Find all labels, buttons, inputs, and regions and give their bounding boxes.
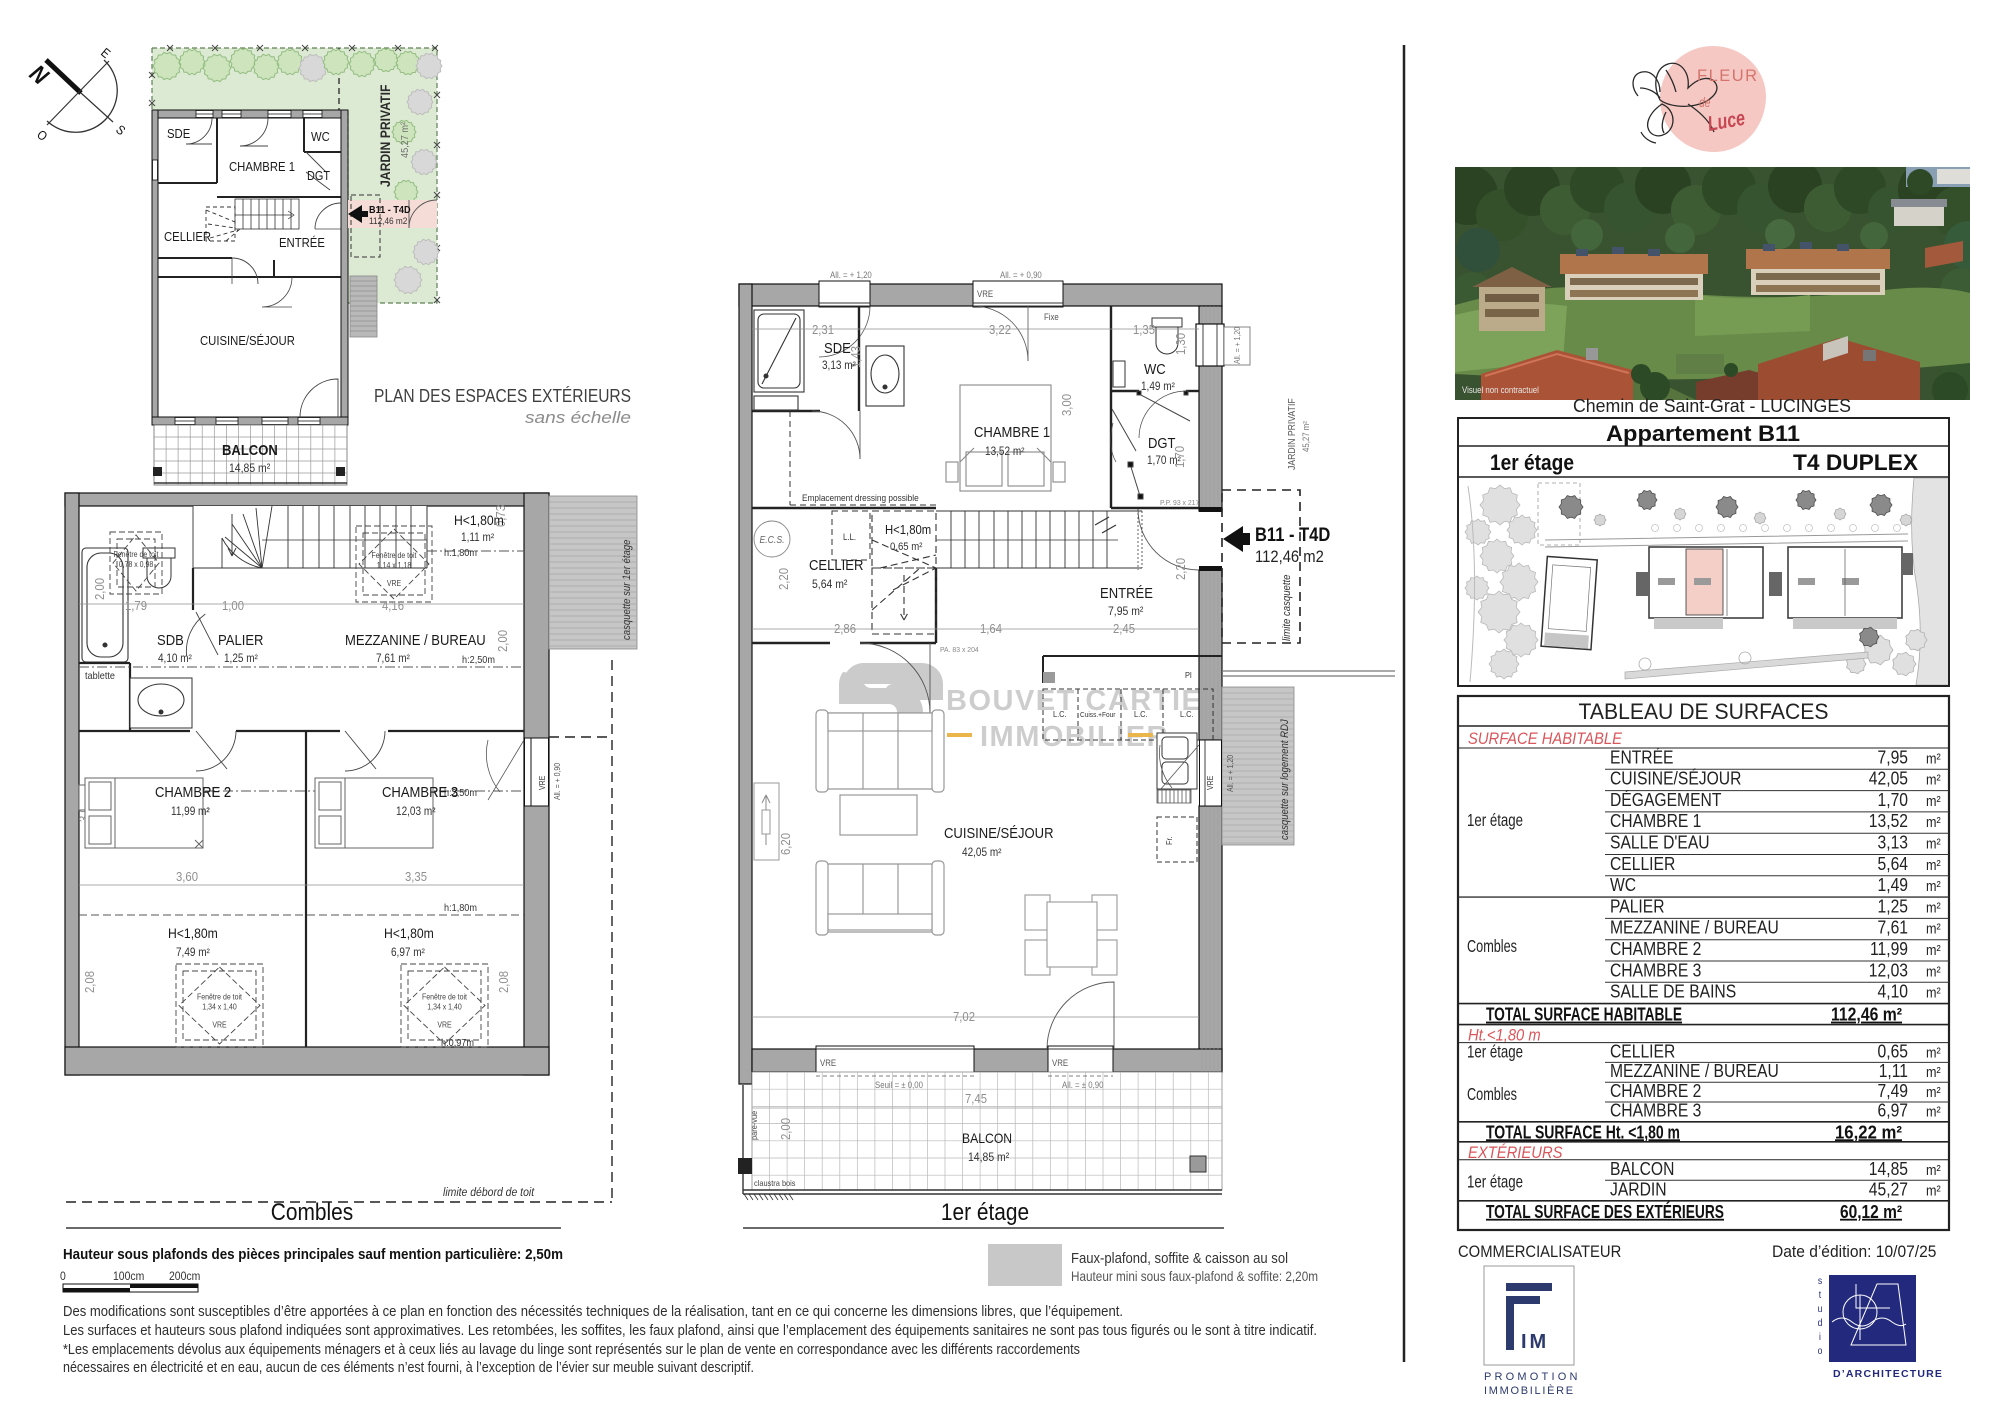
svg-text:4,10: 4,10 (1878, 982, 1909, 1002)
svg-text:CHAMBRE 3: CHAMBRE 3 (1610, 960, 1701, 980)
svg-text:m²: m² (1926, 815, 1941, 831)
svg-text:112,46 m2: 112,46 m2 (1255, 547, 1324, 566)
svg-text:BALCON: BALCON (962, 1130, 1012, 1146)
svg-text:Fenêtre de toit: Fenêtre de toit (197, 993, 243, 1002)
svg-text:2,00: 2,00 (778, 1118, 793, 1140)
svg-text:13,52: 13,52 (1869, 811, 1908, 831)
svg-text:u: u (1818, 1304, 1823, 1315)
svg-text:S: S (113, 122, 129, 138)
svg-text:4,16: 4,16 (382, 598, 404, 613)
svg-text:COMMERCIALISATEUR: COMMERCIALISATEUR (1458, 1242, 1621, 1261)
svg-text:0,65: 0,65 (1878, 1041, 1909, 1061)
svg-text:L.C.: L.C. (1134, 709, 1148, 719)
svg-text:2,45: 2,45 (1113, 621, 1135, 636)
svg-text:11,99 m²: 11,99 m² (171, 806, 210, 818)
svg-text:CHAMBRE 3: CHAMBRE 3 (382, 784, 458, 801)
svg-text:m²: m² (1926, 1184, 1941, 1200)
svg-text:JARDIN PRIVATIF: JARDIN PRIVATIF (377, 84, 393, 187)
svg-text:SDE: SDE (824, 340, 851, 357)
svg-text:CUISINE/SÉJOUR: CUISINE/SÉJOUR (1610, 769, 1741, 789)
svg-text:MEZZANINE / BUREAU: MEZZANINE / BUREAU (1610, 918, 1779, 938)
svg-text:1er étage: 1er étage (1467, 810, 1523, 830)
svg-text:t: t (1819, 1290, 1822, 1301)
svg-text:7,61: 7,61 (1878, 918, 1909, 938)
svg-text:SURFACE HABITABLE: SURFACE HABITABLE (1468, 729, 1623, 748)
svg-text:CHAMBRE 2: CHAMBRE 2 (1610, 939, 1701, 959)
svg-text:MEZZANINE / BUREAU: MEZZANINE / BUREAU (345, 632, 486, 649)
svg-text:H<1,80m: H<1,80m (384, 925, 434, 941)
svg-text:B11 - T4D: B11 - T4D (1255, 525, 1330, 546)
svg-text:7,02: 7,02 (953, 1009, 975, 1024)
svg-text:PLAN DES ESPACES EXTÉRIEURS: PLAN DES ESPACES EXTÉRIEURS (374, 385, 631, 406)
svg-text:O: O (34, 127, 50, 144)
svg-text:m²: m² (1926, 1085, 1941, 1101)
svg-text:VRE: VRE (387, 579, 401, 588)
svg-text:1er étage: 1er étage (1467, 1172, 1523, 1192)
svg-text:CELLIER: CELLIER (1610, 854, 1675, 874)
svg-text:5,64 m²: 5,64 m² (812, 577, 847, 591)
svg-text:m²: m² (1926, 1163, 1941, 1179)
svg-text:SALLE D'EAU: SALLE D'EAU (1610, 833, 1710, 853)
svg-text:VRE: VRE (820, 1058, 836, 1068)
svg-text:CHAMBRE 1: CHAMBRE 1 (1610, 811, 1701, 831)
svg-text:1,25 m²: 1,25 m² (224, 653, 258, 665)
svg-text:sans échelle: sans échelle (525, 409, 631, 427)
svg-text:h:2,50m: h:2,50m (462, 654, 495, 666)
svg-text:m²: m² (1926, 922, 1941, 938)
svg-text:4,10 m²: 4,10 m² (158, 653, 192, 665)
svg-text:WC: WC (1610, 875, 1636, 895)
svg-text:100cm: 100cm (113, 1269, 144, 1283)
svg-text:Date d’édition: 10/07/25: Date d’édition: 10/07/25 (1772, 1242, 1936, 1261)
svg-text:D’ARCHITECTURE: D’ARCHITECTURE (1833, 1368, 1943, 1380)
svg-text:5,64: 5,64 (1878, 854, 1909, 874)
svg-text:m²: m² (1926, 773, 1941, 789)
svg-text:Combles: Combles (1467, 1084, 1517, 1104)
svg-text:1,79: 1,79 (125, 598, 147, 613)
svg-text:1,70 m²: 1,70 m² (1147, 455, 1181, 467)
svg-text:E.C.S.: E.C.S. (759, 535, 784, 546)
svg-text:CUISINE/SÉJOUR: CUISINE/SÉJOUR (944, 825, 1054, 842)
svg-text:Combles: Combles (271, 1199, 353, 1226)
svg-text:Fenêtre de toit: Fenêtre de toit (422, 993, 468, 1002)
svg-text:CUISINE/SÉJOUR: CUISINE/SÉJOUR (200, 333, 295, 348)
svg-text:PROMOTION: PROMOTION (1484, 1371, 1581, 1383)
svg-text:SDE: SDE (167, 126, 191, 141)
svg-text:1er étage: 1er étage (1467, 1041, 1523, 1061)
svg-text:Fixe: Fixe (1044, 312, 1059, 322)
svg-text:JARDIN PRIVATIF: JARDIN PRIVATIF (1287, 398, 1298, 470)
svg-text:3,13: 3,13 (1878, 833, 1909, 853)
svg-text:limite débord de toit: limite débord de toit (443, 1185, 535, 1199)
svg-text:13,52 m²: 13,52 m² (985, 446, 1025, 458)
svg-text:VRE: VRE (977, 289, 993, 299)
svg-text:2,20: 2,20 (1173, 558, 1188, 580)
svg-text:ENTRÉE: ENTRÉE (279, 235, 325, 250)
svg-text:m²: m² (1926, 1045, 1941, 1061)
svg-text:11,99: 11,99 (1870, 939, 1908, 959)
svg-text:T4 DUPLEX: T4 DUPLEX (1793, 450, 1918, 475)
svg-text:casquette sur 1er étage: casquette sur 1er étage (621, 540, 633, 641)
svg-text:3,00: 3,00 (1059, 394, 1074, 416)
svg-text:All. = + 1,20: All. = + 1,20 (1226, 754, 1235, 792)
svg-text:All. = + 0,90: All. = + 0,90 (1000, 270, 1042, 280)
svg-text:L.C.: L.C. (1180, 709, 1194, 719)
svg-text:i: i (1819, 1332, 1821, 1343)
svg-text:2,00: 2,00 (495, 630, 510, 652)
svg-text:H<1,80m: H<1,80m (885, 522, 931, 537)
svg-text:7,95: 7,95 (1878, 747, 1909, 767)
svg-text:VRE: VRE (212, 1021, 226, 1030)
svg-text:BALCON: BALCON (222, 442, 278, 459)
svg-text:2,08: 2,08 (82, 971, 97, 993)
svg-text:12,03 m²: 12,03 m² (396, 806, 436, 818)
svg-text:DÉGAGEMENT: DÉGAGEMENT (1610, 790, 1721, 810)
svg-text:limite casquette: limite casquette (1281, 575, 1293, 642)
svg-text:Emplacement dressing possible: Emplacement dressing possible (802, 493, 919, 504)
svg-text:14,85 m²: 14,85 m² (968, 1150, 1009, 1164)
svg-text:Hauteur sous plafonds des pièc: Hauteur sous plafonds des pièces princip… (63, 1246, 563, 1263)
svg-text:1,11 m²: 1,11 m² (461, 532, 494, 544)
svg-text:TOTAL SURFACE Ht. <1,80 m: TOTAL SURFACE Ht. <1,80 m (1486, 1122, 1680, 1142)
svg-text:m²: m² (1926, 751, 1941, 767)
svg-text:Hauteur mini sous faux-plafond: Hauteur mini sous faux-plafond & soffite… (1071, 1268, 1318, 1284)
svg-text:Fr.: Fr. (1164, 836, 1174, 845)
svg-text:SALLE DE BAINS: SALLE DE BAINS (1610, 982, 1736, 1002)
svg-text:CELLIER: CELLIER (1610, 1041, 1675, 1061)
svg-text:45,27 m²: 45,27 m² (1301, 421, 1311, 452)
svg-text:B11 - T4D: B11 - T4D (369, 204, 411, 216)
svg-text:0,78 x 0,98: 0,78 x 0,98 (119, 560, 154, 569)
svg-text:16,22 m²: 16,22 m² (1835, 1122, 1902, 1142)
svg-text:6,97: 6,97 (1878, 1101, 1909, 1121)
svg-text:112,46 m2: 112,46 m2 (369, 216, 407, 227)
svg-text:TOTAL SURFACE DES EXTÉRIEURS: TOTAL SURFACE DES EXTÉRIEURS (1486, 1201, 1724, 1222)
svg-text:casquette sur logement RDJ: casquette sur logement RDJ (1279, 719, 1291, 840)
svg-text:7,95 m²: 7,95 m² (1108, 604, 1143, 618)
svg-text:Chemin de Saint-Grat - LUCINGE: Chemin de Saint-Grat - LUCINGES (1573, 396, 1851, 416)
svg-text:VRE: VRE (1052, 1058, 1068, 1068)
svg-text:PA. 83 x 204: PA. 83 x 204 (940, 645, 979, 654)
svg-text:TOTAL SURFACE HABITABLE: TOTAL SURFACE HABITABLE (1486, 1005, 1682, 1025)
svg-text:All. = ± 0,90: All. = ± 0,90 (1062, 1080, 1104, 1090)
svg-text:Fenêtre de toit: Fenêtre de toit (114, 550, 160, 559)
svg-text:2,08: 2,08 (496, 971, 511, 993)
svg-text:VRE: VRE (1206, 776, 1215, 790)
svg-text:MEZZANINE / BUREAU: MEZZANINE / BUREAU (1610, 1061, 1779, 1081)
svg-text:m²: m² (1926, 900, 1941, 916)
svg-text:FLEUR: FLEUR (1697, 67, 1759, 85)
svg-text:m²: m² (1926, 794, 1941, 810)
svg-text:112,46 m²: 112,46 m² (1831, 1005, 1902, 1025)
svg-text:m²: m² (1926, 943, 1941, 959)
svg-text:P.P. 93 x 217: P.P. 93 x 217 (1160, 498, 1199, 507)
svg-text:*Les emplacements dévolus aux: *Les emplacements dévolus aux équipement… (63, 1342, 1080, 1358)
svg-text:IM: IM (1521, 1331, 1549, 1353)
svg-text:7,49 m²: 7,49 m² (176, 947, 210, 959)
svg-text:2,31: 2,31 (812, 322, 834, 337)
svg-text:Combles: Combles (1467, 936, 1517, 956)
svg-text:6,20: 6,20 (778, 833, 793, 855)
svg-text:1,11: 1,11 (1879, 1061, 1908, 1081)
svg-text:Appartement B11: Appartement B11 (1606, 421, 1800, 446)
svg-text:2,86: 2,86 (834, 621, 856, 636)
svg-text:0,65 m²: 0,65 m² (890, 541, 923, 553)
svg-text:tablette: tablette (85, 670, 115, 682)
svg-text:7,45: 7,45 (965, 1091, 987, 1106)
svg-text:m²: m² (1926, 879, 1941, 895)
svg-text:pare-vue: pare-vue (749, 1111, 759, 1140)
svg-text:WC: WC (311, 129, 330, 144)
svg-text:1,25: 1,25 (1878, 896, 1909, 916)
svg-text:L.C.: L.C. (1053, 709, 1067, 719)
svg-text:1,35: 1,35 (1133, 322, 1155, 337)
svg-text:1,64: 1,64 (980, 621, 1002, 636)
svg-text:E: E (98, 45, 114, 61)
svg-text:14,85: 14,85 (1869, 1159, 1908, 1179)
svg-text:3,60: 3,60 (176, 869, 198, 884)
svg-text:ENTRÉE: ENTRÉE (1610, 747, 1674, 767)
svg-text:Seuil = ± 0,00: Seuil = ± 0,00 (875, 1080, 923, 1090)
svg-text:1,00: 1,00 (222, 598, 244, 613)
svg-text:m²: m² (1926, 1105, 1941, 1121)
svg-text:200cm: 200cm (169, 1269, 200, 1283)
svg-text:0: 0 (60, 1269, 66, 1283)
svg-text:DGT: DGT (307, 169, 330, 183)
svg-text:Cuiss.+Four: Cuiss.+Four (1080, 710, 1116, 719)
svg-text:Pl: Pl (1185, 670, 1192, 680)
svg-text:Des modifications sont suscept: Des modifications sont susceptibles d’êt… (63, 1304, 1123, 1320)
svg-text:m²: m² (1926, 837, 1941, 853)
svg-text:claustra bois: claustra bois (754, 1178, 796, 1188)
svg-text:Les surfaces et hauteurs sous: Les surfaces et hauteurs sous plafond in… (63, 1323, 1317, 1339)
svg-text:IMMOBILIÈRE: IMMOBILIÈRE (1484, 1384, 1575, 1397)
svg-text:m²: m² (1926, 964, 1941, 980)
svg-text:1er étage: 1er étage (941, 1199, 1029, 1226)
svg-text:CELLIER: CELLIER (809, 557, 864, 574)
svg-text:h:1,80m: h:1,80m (444, 902, 477, 914)
svg-text:SDB: SDB (157, 632, 184, 649)
svg-text:CHAMBRE 2: CHAMBRE 2 (155, 784, 231, 801)
svg-text:45,27: 45,27 (1869, 1180, 1908, 1200)
svg-text:WC: WC (1144, 361, 1166, 378)
svg-text:ENTRÉE: ENTRÉE (1100, 585, 1153, 602)
svg-text:All. = + 1,20: All. = + 1,20 (1233, 326, 1242, 364)
svg-text:1,14 x 1,18: 1,14 x 1,18 (377, 561, 412, 570)
svg-text:60,12 m²: 60,12 m² (1840, 1202, 1902, 1222)
svg-text:BALCON: BALCON (1610, 1159, 1674, 1179)
svg-text:h:1,80m: h:1,80m (444, 547, 477, 559)
svg-text:1,70: 1,70 (1878, 790, 1909, 810)
svg-text:L.L.: L.L. (843, 532, 856, 542)
svg-text:Faux-plafond, soffite & caisso: Faux-plafond, soffite & caisson au sol (1071, 1250, 1288, 1267)
svg-text:CELLIER: CELLIER (164, 229, 211, 244)
svg-text:7,61 m²: 7,61 m² (376, 653, 410, 665)
svg-text:VRE: VRE (437, 1021, 451, 1030)
svg-text:3,13 m²: 3,13 m² (822, 360, 856, 372)
svg-text:All. = + 1,20: All. = + 1,20 (830, 270, 872, 280)
svg-text:VRE: VRE (538, 776, 547, 790)
svg-text:42,05: 42,05 (1869, 769, 1908, 789)
svg-text:Visuel non contractuel: Visuel non contractuel (1462, 385, 1539, 395)
svg-text:H<1,80m: H<1,80m (454, 512, 504, 528)
svg-text:1,34 x 1,40: 1,34 x 1,40 (427, 1003, 462, 1012)
svg-text:EXTÉRIEURS: EXTÉRIEURS (1468, 1143, 1563, 1162)
svg-text:12,03: 12,03 (1869, 960, 1908, 980)
svg-text:2,20: 2,20 (776, 568, 791, 590)
svg-text:CHAMBRE 1: CHAMBRE 1 (229, 159, 295, 174)
svg-text:1,34 x 1,40: 1,34 x 1,40 (202, 1003, 237, 1012)
svg-text:CHAMBRE 2: CHAMBRE 2 (1610, 1081, 1701, 1101)
svg-text:1,30: 1,30 (1173, 333, 1188, 355)
svg-text:H<1,80m: H<1,80m (168, 925, 218, 941)
svg-text:1er étage: 1er étage (1490, 450, 1574, 475)
svg-text:TABLEAU DE SURFACES: TABLEAU DE SURFACES (1579, 699, 1829, 724)
svg-text:3,22: 3,22 (989, 322, 1011, 337)
svg-text:2,00: 2,00 (92, 578, 107, 600)
svg-text:CHAMBRE 3: CHAMBRE 3 (1610, 1101, 1701, 1121)
svg-text:7,49: 7,49 (1878, 1081, 1909, 1101)
svg-text:45,27 m²: 45,27 m² (399, 122, 411, 158)
svg-text:d: d (1818, 1318, 1823, 1329)
svg-text:s: s (1818, 1276, 1822, 1287)
svg-text:DGT: DGT (1148, 435, 1176, 452)
svg-text:o: o (1818, 1346, 1823, 1357)
svg-text:PALIER: PALIER (218, 632, 264, 649)
svg-text:1,49: 1,49 (1878, 875, 1909, 895)
svg-text:42,05 m²: 42,05 m² (962, 847, 1002, 859)
svg-text:All. = + 0,90: All. = + 0,90 (553, 762, 562, 800)
svg-text:nécessaires en électricité et: nécessaires en électricité et en eau, au… (63, 1360, 754, 1376)
svg-text:6,97 m²: 6,97 m² (391, 947, 425, 959)
svg-text:m²: m² (1926, 858, 1941, 874)
svg-text:de: de (1699, 94, 1711, 110)
svg-text:14,85 m²: 14,85 m² (229, 461, 270, 475)
svg-text:3,35: 3,35 (405, 869, 427, 884)
svg-text:1,49 m²: 1,49 m² (1141, 381, 1175, 393)
svg-text:Fenêtre de toit: Fenêtre de toit (372, 551, 418, 560)
svg-text:PALIER: PALIER (1610, 896, 1665, 916)
svg-text:m²: m² (1926, 986, 1941, 1002)
svg-text:CHAMBRE 1: CHAMBRE 1 (974, 424, 1050, 441)
svg-text:m²: m² (1926, 1065, 1941, 1081)
svg-text:JARDIN: JARDIN (1610, 1180, 1667, 1200)
